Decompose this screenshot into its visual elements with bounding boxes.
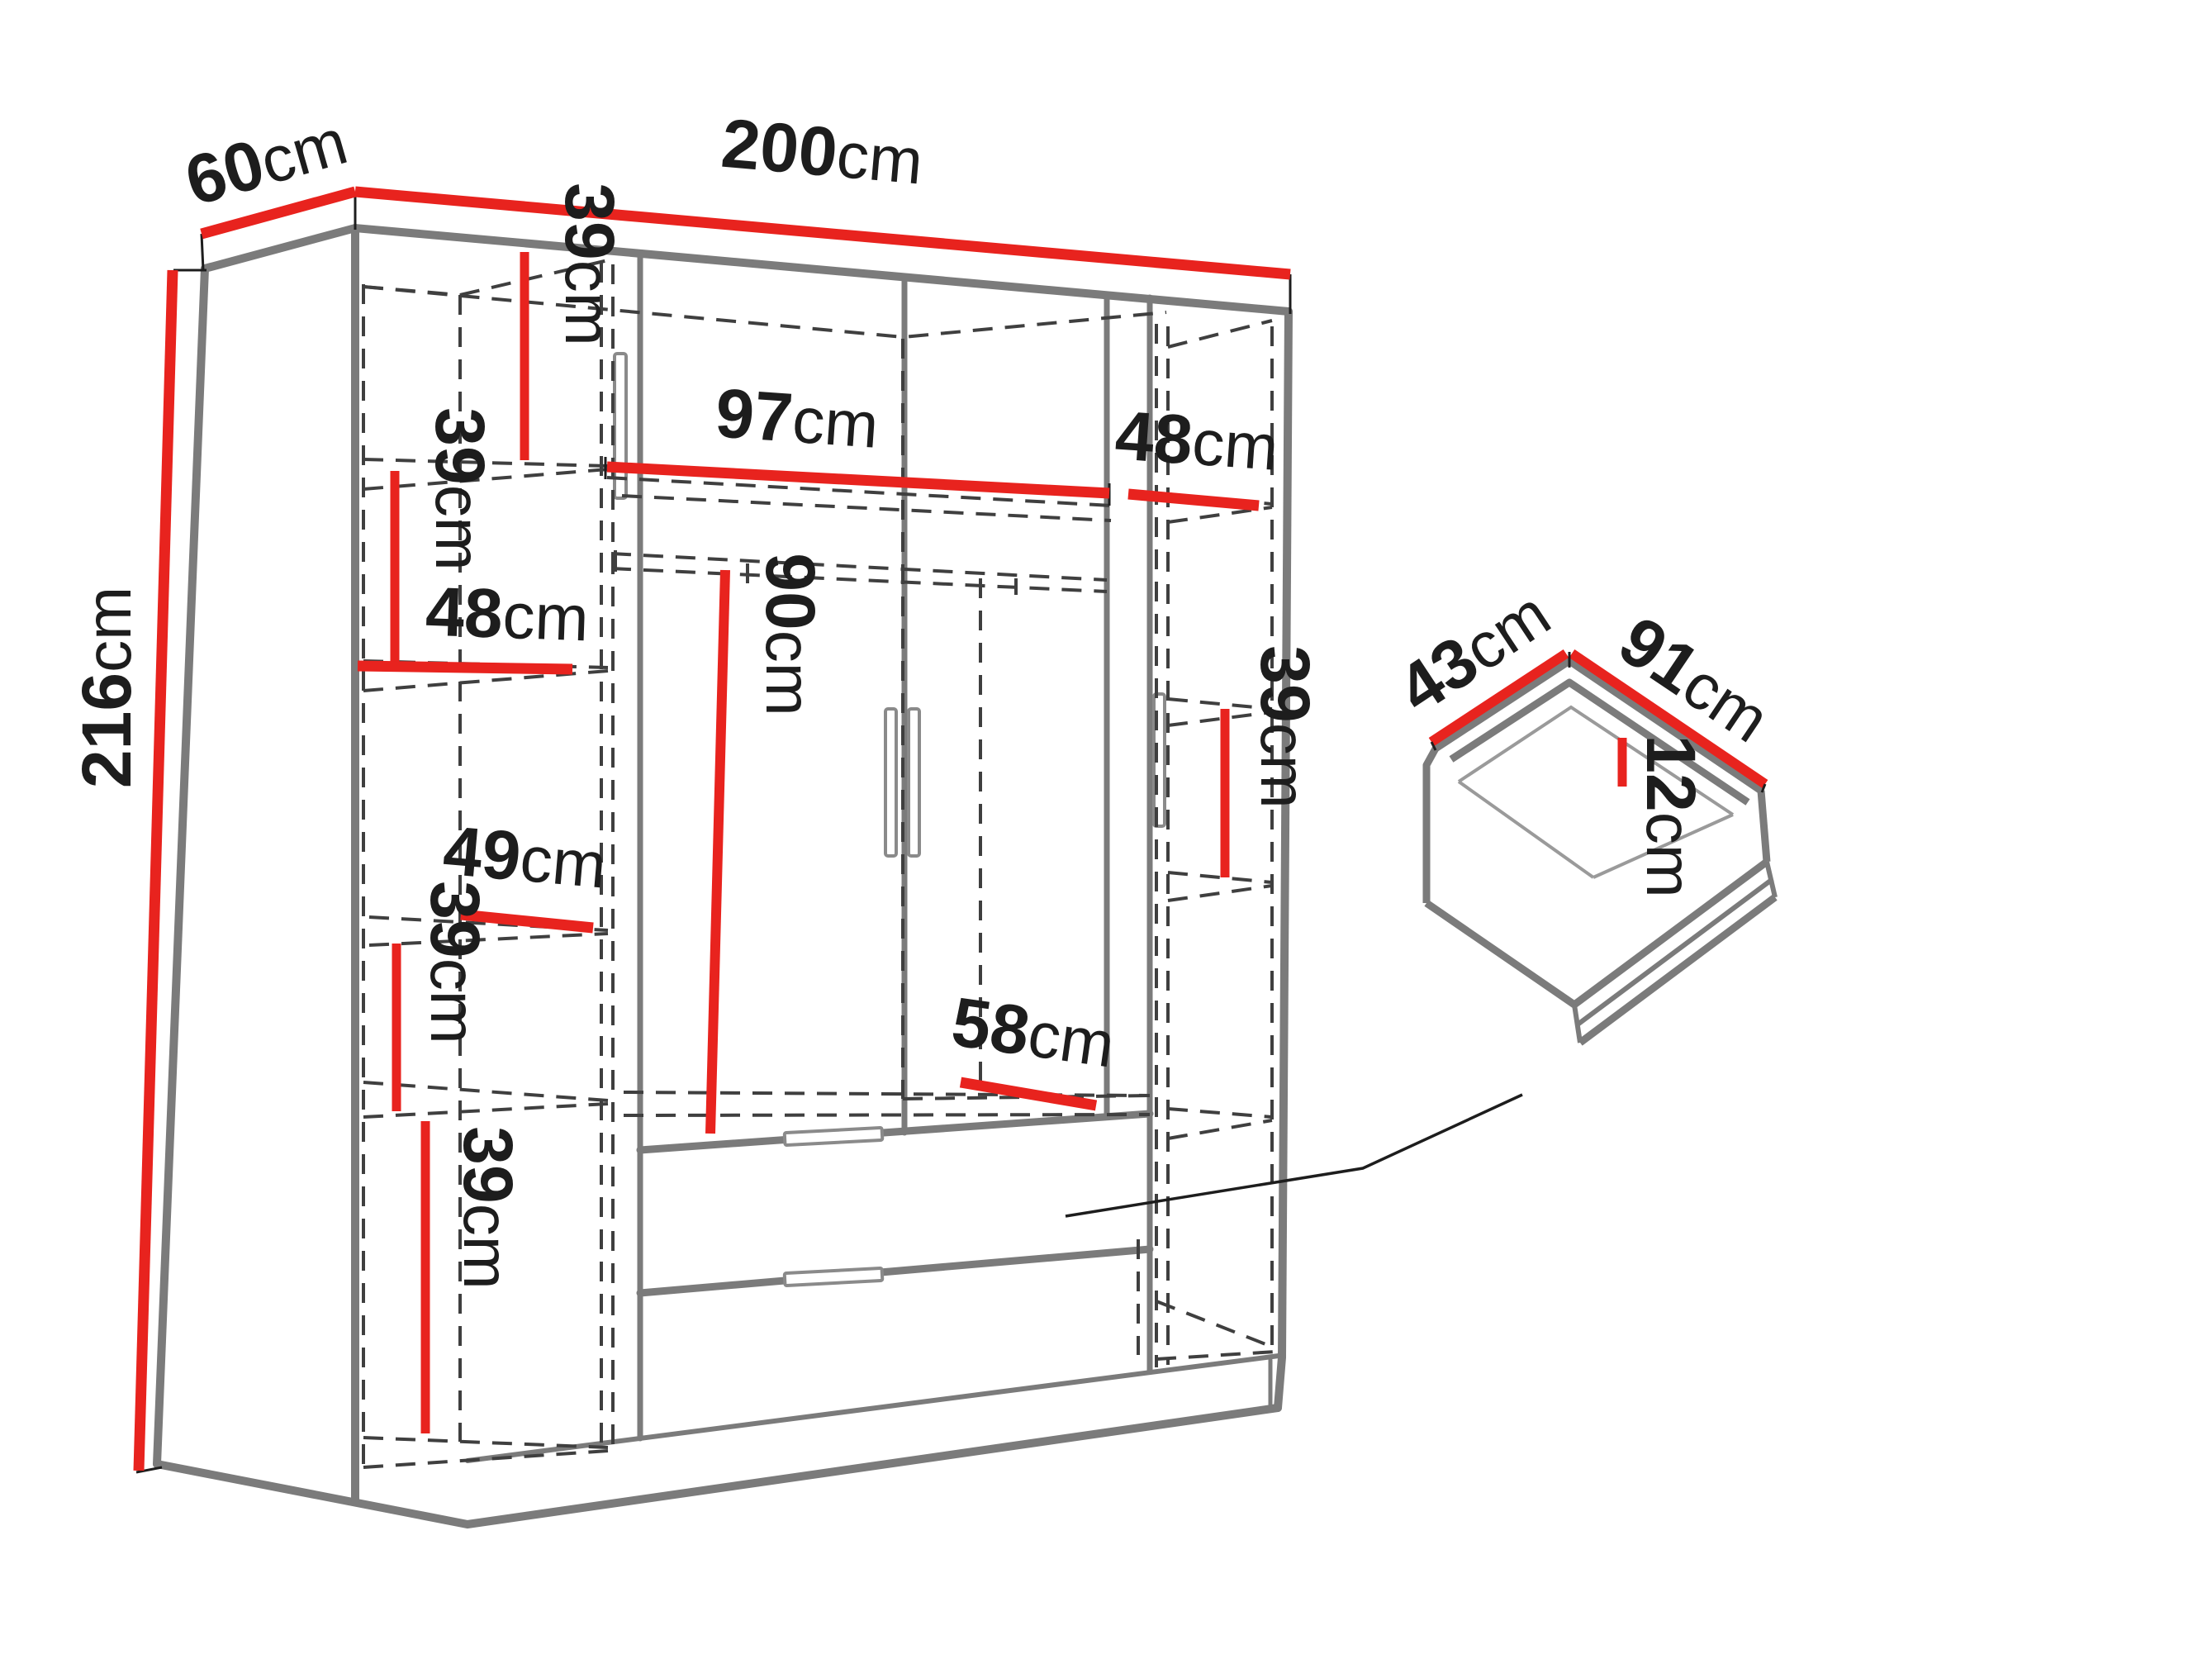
label-90cm: 90cm (752, 553, 829, 715)
interior-top-back (363, 287, 1166, 337)
wardrobe-bottom-edge (157, 1408, 1278, 1524)
drawer-right-back-edge (1761, 791, 1767, 862)
drawer-handle-1 (785, 1128, 883, 1145)
drawer-divider-edge (640, 1249, 1150, 1293)
label-48cm-left: 48cm (425, 573, 591, 656)
right-shelf-3a (1168, 872, 1272, 882)
label-58cm: 58cm (947, 982, 1120, 1082)
plinth-top-line (468, 1356, 1279, 1461)
hanging-rail-a (611, 554, 1107, 580)
drawer-top-edge (640, 1114, 1150, 1150)
dimension-lines (139, 192, 1290, 1471)
hanging-rail-b (611, 568, 1107, 592)
label-39cm-right: 39cm (1246, 645, 1324, 808)
right-shelf-4a (1168, 1109, 1272, 1117)
label-216cm: 216cm (68, 587, 145, 788)
left-top-horizontal (363, 287, 460, 295)
dim-line-90cm (710, 570, 725, 1134)
label-97cm: 97cm (713, 373, 881, 463)
center-shelf-top-b (622, 496, 1111, 521)
label-39cm-left-2: 39cm (421, 407, 499, 570)
diagram-canvas: 60cm 200cm 216cm 39cm 97cm 48cm 39cm 48c… (0, 0, 2212, 1659)
label-200cm: 200cm (719, 104, 926, 199)
drawer-front-bottom-edge (1580, 897, 1775, 1043)
dim-line-97cm (607, 467, 1109, 493)
right-shelf-3b (1168, 886, 1272, 901)
door-handle-3 (909, 709, 919, 856)
dim-line-48cm-left (358, 666, 572, 669)
drawer-handle-2 (785, 1268, 883, 1286)
drawer-left-edge (1426, 749, 1436, 903)
drawer-front-left-cap (1574, 1005, 1580, 1043)
wardrobe-dimension-diagram: 60cm 200cm 216cm 39cm 97cm 48cm 39cm 48c… (0, 0, 2212, 1659)
extension-lines (136, 192, 1290, 1472)
label-39cm-top-left: 39cm (551, 183, 629, 345)
right-top-diagonal (1168, 321, 1272, 347)
door-handle-2 (885, 709, 896, 856)
ext-depth-left (202, 234, 203, 270)
label-39cm-left-3: 39cm (416, 881, 494, 1043)
drawer-detail: 43cm 91cm 12cm (1066, 573, 1784, 1216)
label-39cm-left-4: 39cm (449, 1126, 527, 1289)
drawer-bottom-left-edge (1426, 903, 1574, 1005)
dim-line-200cm (355, 192, 1290, 274)
label-48cm-right: 48cm (1113, 396, 1280, 485)
wardrobe-top-edge (205, 228, 1289, 311)
wardrobe-right-edge (1278, 311, 1289, 1408)
center-bottom-shelf-b (624, 1115, 1150, 1115)
drawer-front-mid-edge (1578, 879, 1773, 1024)
label-12cm: 12cm (1632, 734, 1710, 897)
drawer-floor-left (1459, 782, 1593, 877)
left-base-a (363, 1438, 608, 1447)
right-shelf-4b (1168, 1120, 1272, 1138)
right-base-a (1156, 1301, 1276, 1348)
